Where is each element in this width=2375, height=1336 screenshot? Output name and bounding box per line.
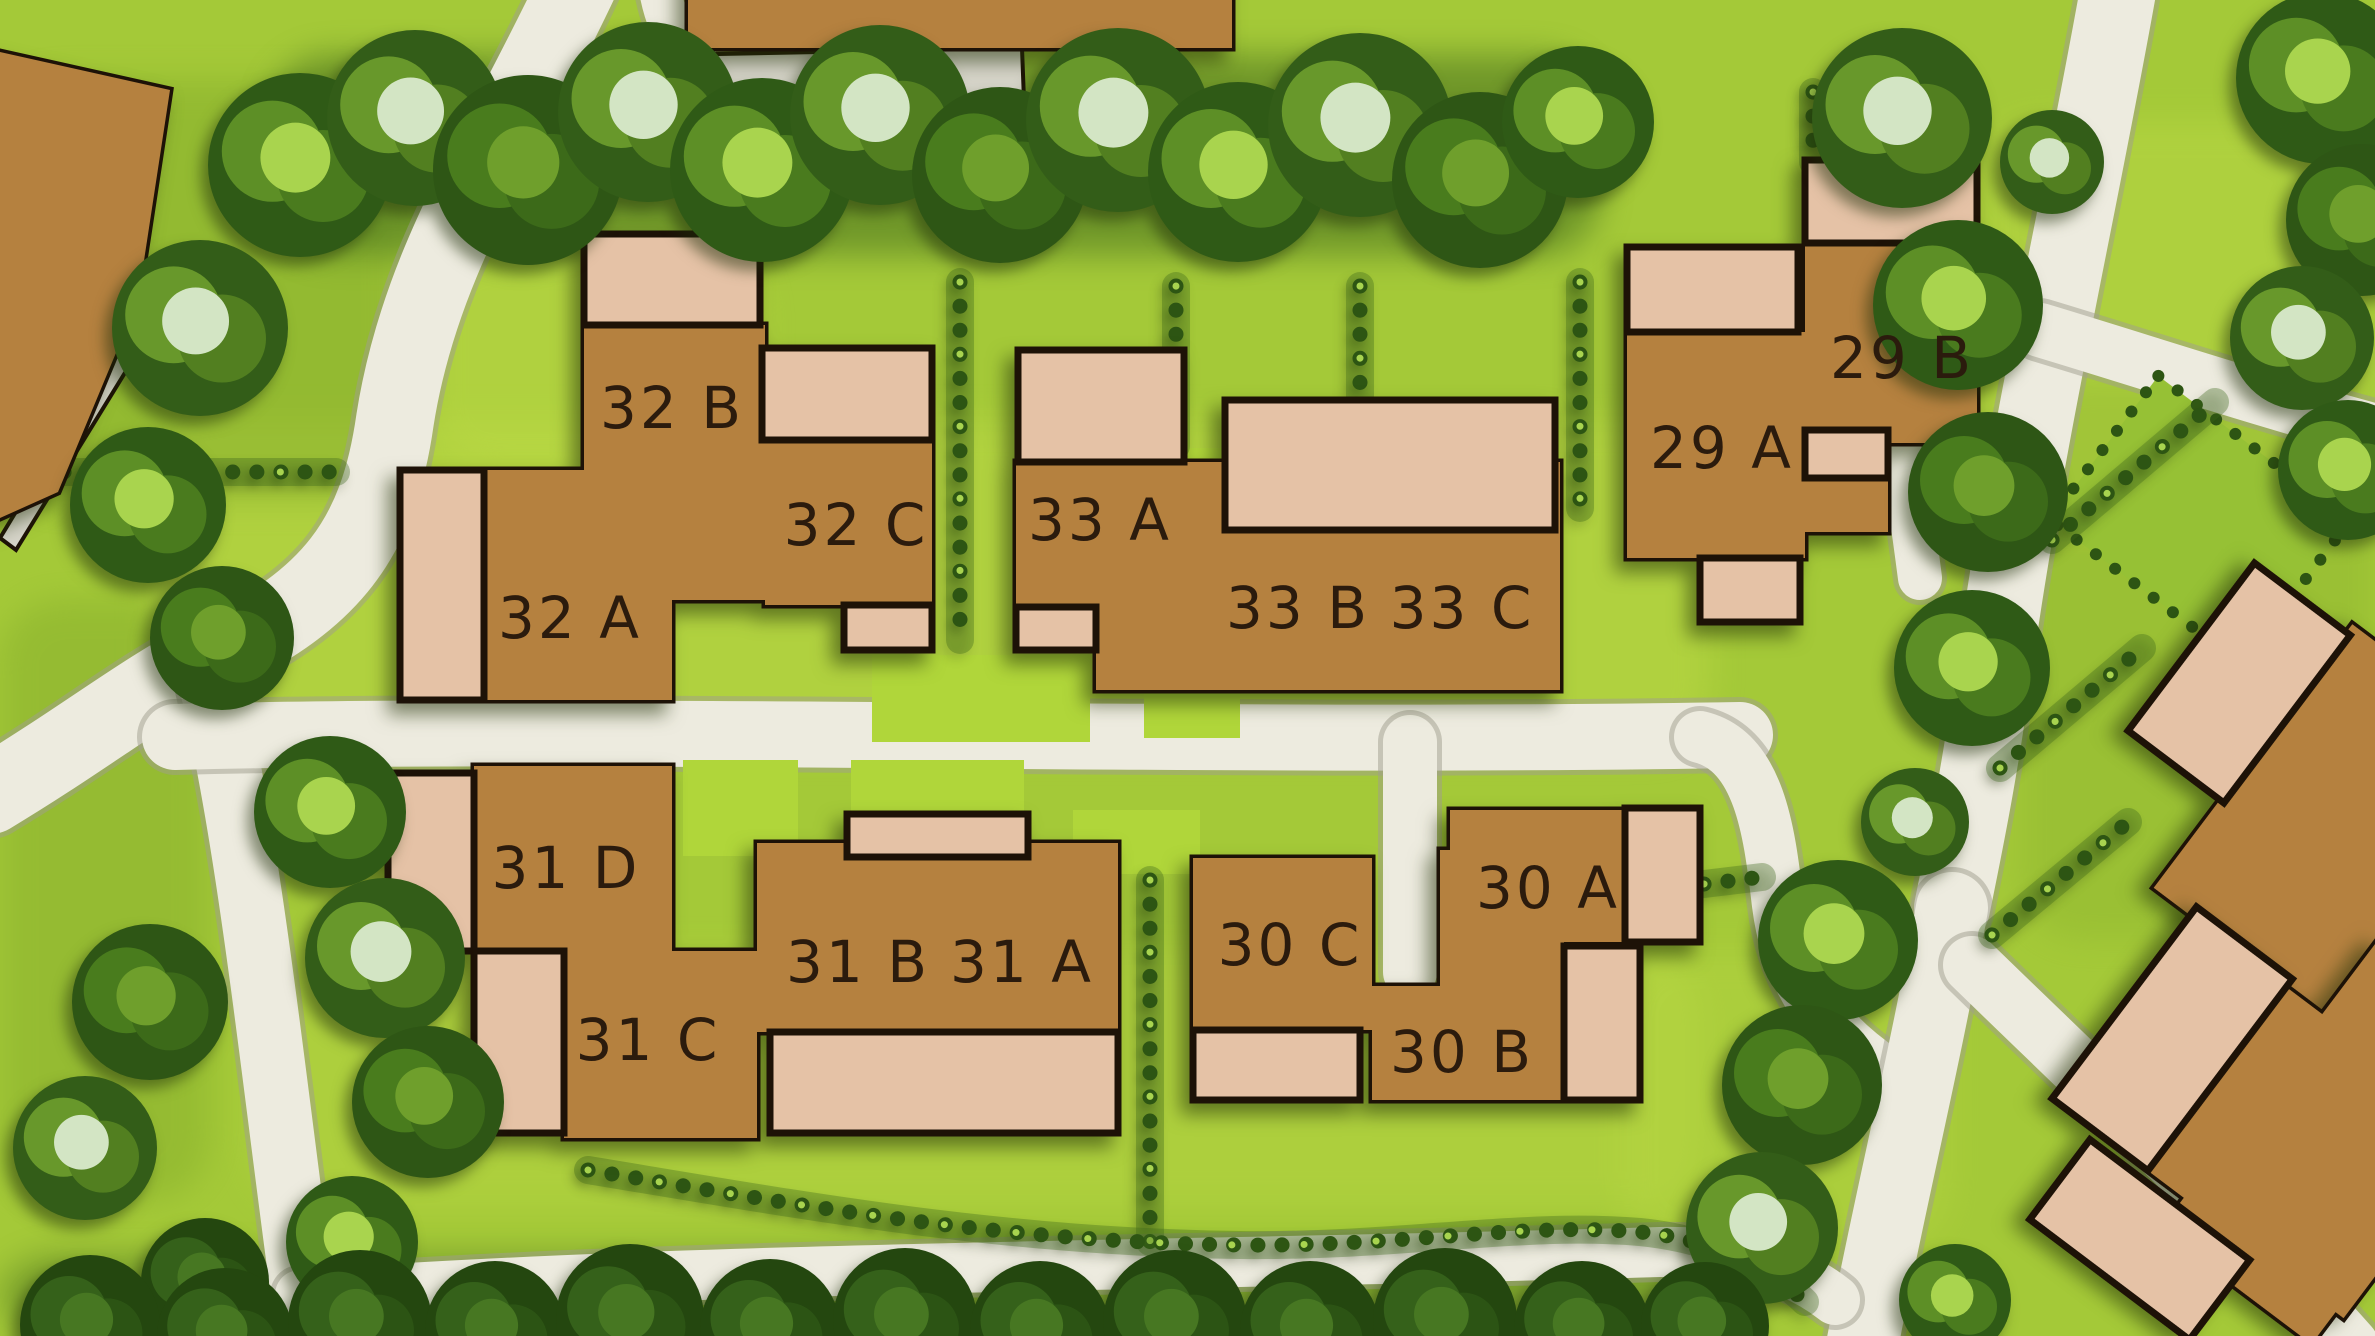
tree bbox=[254, 736, 406, 888]
tree bbox=[1908, 412, 2068, 572]
building-part[interactable] bbox=[770, 1032, 1118, 1133]
building-part[interactable] bbox=[1018, 350, 1184, 462]
building-part[interactable] bbox=[847, 814, 1028, 857]
building-part[interactable] bbox=[1627, 247, 1798, 332]
lawn-accent bbox=[872, 655, 1090, 742]
tree bbox=[1758, 860, 1918, 1020]
building-label-32a: 32 A bbox=[498, 584, 642, 652]
building-label-29a: 29 A bbox=[1650, 414, 1794, 482]
building-label-31d: 31 D bbox=[492, 834, 641, 902]
tree bbox=[1502, 46, 1654, 198]
tree bbox=[305, 878, 465, 1038]
building-part[interactable] bbox=[1700, 558, 1800, 622]
tree bbox=[72, 924, 228, 1080]
siteplan-map: 29 A29 B32 B32 C32 A33 A33 B33 C31 D31 C… bbox=[0, 0, 2375, 1336]
building-part[interactable] bbox=[1225, 400, 1555, 530]
building-label-30c: 30 C bbox=[1218, 911, 1363, 979]
siteplan-stage: 29 A29 B32 B32 C32 A33 A33 B33 C31 D31 C… bbox=[0, 0, 2375, 1336]
building-label-32c: 32 C bbox=[784, 491, 929, 559]
building-part[interactable] bbox=[844, 605, 932, 650]
tree bbox=[1861, 768, 1969, 876]
building-label-30a: 30 A bbox=[1476, 854, 1620, 922]
tree bbox=[1894, 590, 2050, 746]
building-label-32b: 32 B bbox=[600, 374, 744, 442]
building-label-31b: 31 B bbox=[786, 928, 930, 996]
building-part[interactable] bbox=[400, 470, 484, 700]
tree bbox=[13, 1076, 157, 1220]
tree bbox=[1812, 28, 1992, 208]
building-label-30b: 30 B bbox=[1390, 1018, 1534, 1086]
tree bbox=[112, 240, 288, 416]
building-label-33b: 33 B bbox=[1226, 574, 1370, 642]
building-part[interactable] bbox=[762, 348, 932, 440]
tree bbox=[352, 1026, 504, 1178]
lawn-accent bbox=[851, 760, 1024, 812]
building-part[interactable] bbox=[1016, 607, 1096, 650]
tree bbox=[2230, 266, 2374, 410]
tree bbox=[1722, 1005, 1882, 1165]
tree bbox=[150, 566, 294, 710]
building-label-33c: 33 C bbox=[1390, 574, 1535, 642]
building-label-33a: 33 A bbox=[1028, 486, 1172, 554]
building-label-29b: 29 B bbox=[1830, 324, 1974, 392]
building-part[interactable] bbox=[1193, 1030, 1360, 1100]
building-part[interactable] bbox=[1805, 430, 1888, 478]
building-label-31c: 31 C bbox=[576, 1006, 721, 1074]
building-part[interactable] bbox=[1564, 946, 1640, 1100]
building-label-31a: 31 A bbox=[950, 928, 1094, 996]
building-part[interactable] bbox=[1805, 478, 1888, 532]
tree bbox=[2000, 110, 2104, 214]
tree bbox=[70, 427, 226, 583]
building-part[interactable] bbox=[1625, 808, 1700, 942]
